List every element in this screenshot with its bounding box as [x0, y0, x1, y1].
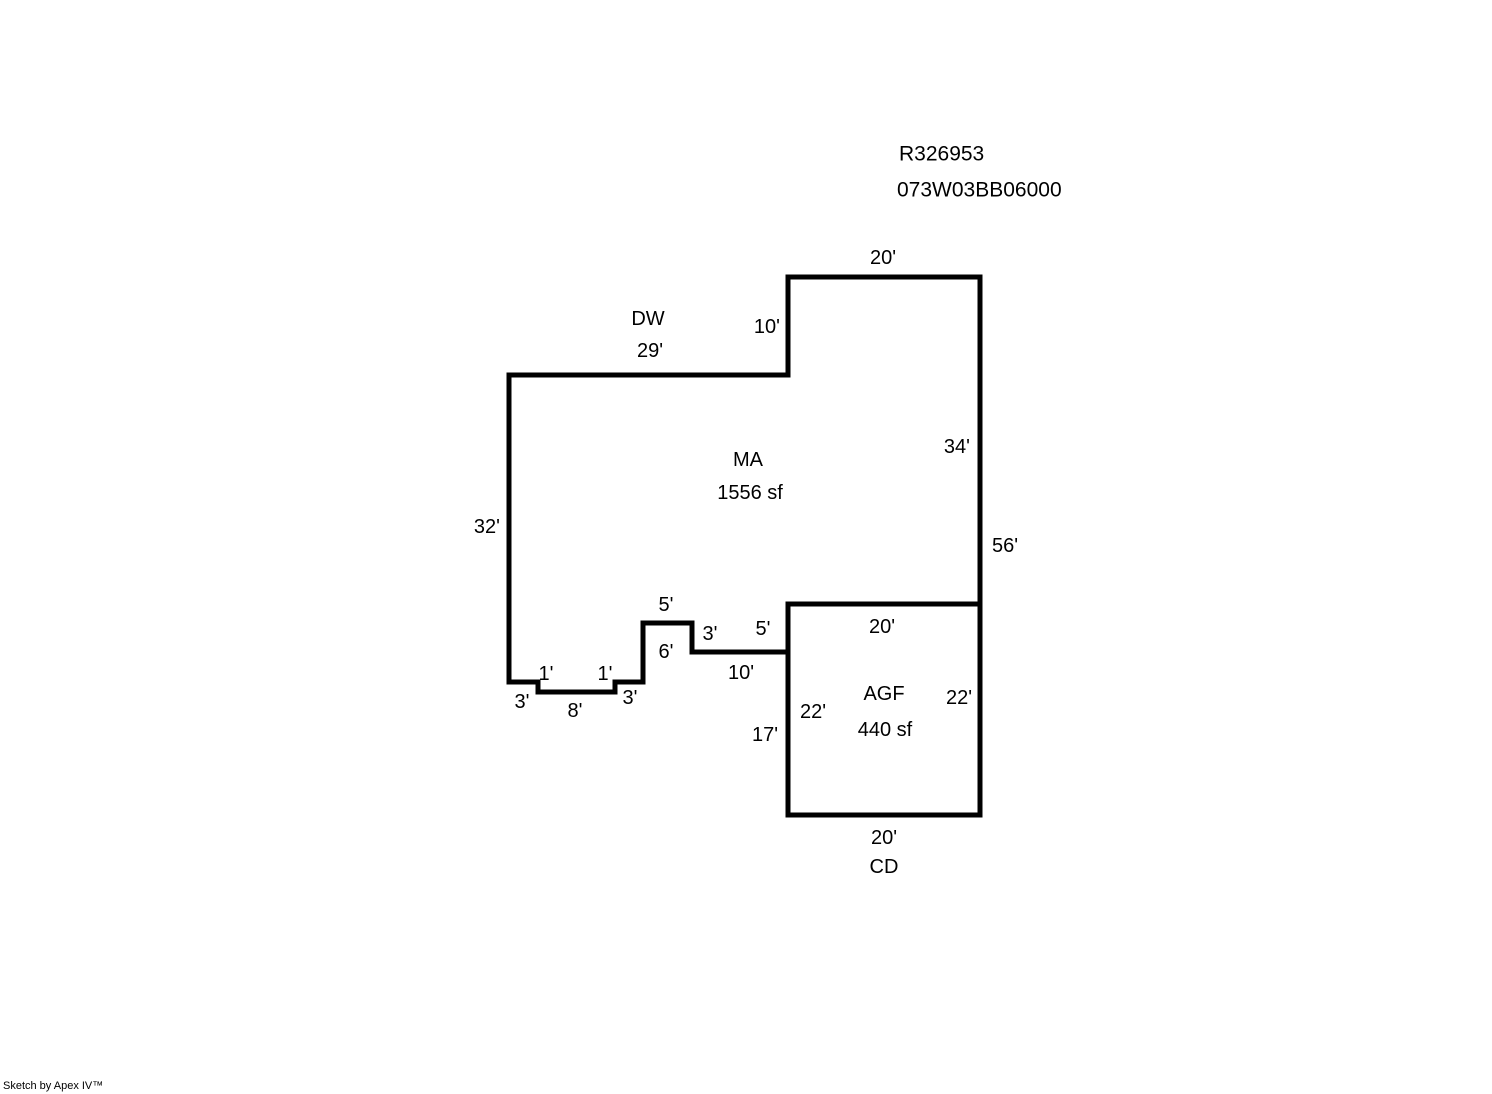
sketch-page: R326953 073W03BB06000 20'10'DW29'MA1556 …: [0, 0, 1492, 1094]
dim-step-1-right: 1': [598, 664, 613, 684]
dim-step-3-left: 3': [515, 692, 530, 712]
dim-agf-left-17: 17': [752, 725, 778, 745]
apex-credit: Sketch by Apex IV™: [3, 1080, 103, 1092]
area-agf-code: AGF: [863, 684, 904, 704]
dim-agf-top-20: 20': [869, 617, 895, 637]
dim-jog-10: 10': [728, 663, 754, 683]
dim-agf-bottom-20: 20': [871, 828, 897, 848]
dim-jog-5-top: 5': [659, 595, 674, 615]
dim-ma-10: 10': [754, 317, 780, 337]
dim-ma-left-32: 32': [474, 517, 500, 537]
area-dw-code: DW: [631, 309, 664, 329]
dim-agf-left-5: 5': [756, 619, 771, 639]
area-ma-code: MA: [733, 450, 763, 470]
dim-agf-22-left: 22': [800, 702, 826, 722]
dim-dw-29: 29': [637, 341, 663, 361]
area-cd-code: CD: [870, 857, 899, 877]
dim-agf-22-right: 22': [946, 688, 972, 708]
dim-step-1-left: 1': [539, 664, 554, 684]
area-agf-size: 440 sf: [858, 720, 912, 740]
floorplan-outline: [0, 0, 1492, 1094]
dim-step-8: 8': [568, 701, 583, 721]
dim-jog-3-step: 3': [703, 624, 718, 644]
dim-jog-6: 6': [659, 642, 674, 662]
dim-right-56: 56': [992, 536, 1018, 556]
dim-ma-top-20: 20': [870, 248, 896, 268]
dim-step-3-right: 3': [623, 688, 638, 708]
area-ma-size: 1556 sf: [717, 483, 783, 503]
dim-ma-34: 34': [944, 437, 970, 457]
